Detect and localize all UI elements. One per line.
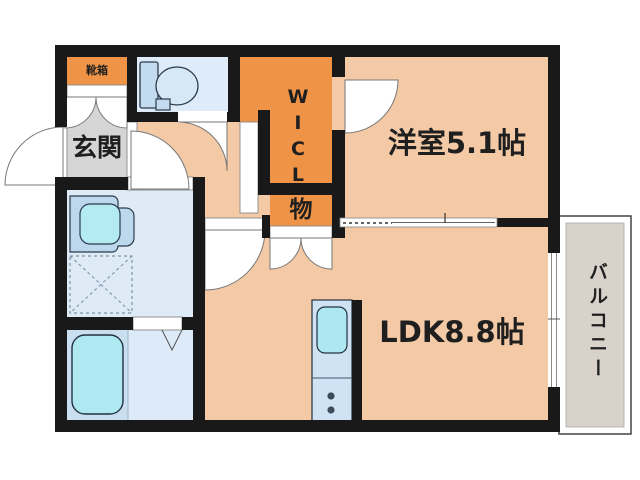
wall-bottom xyxy=(55,420,560,432)
bathtub-icon xyxy=(72,335,123,414)
room-label-shoe-cabinet: 靴箱 xyxy=(86,65,108,77)
kitchen-counter xyxy=(312,300,352,423)
room-label-storage: 物 xyxy=(290,198,313,222)
wall-washroom-north xyxy=(55,177,128,190)
shoe-cabinet-front xyxy=(67,85,127,97)
wall-washroom-east xyxy=(193,177,205,432)
wall-right-lower xyxy=(548,387,560,432)
entrance-door-arc xyxy=(5,127,63,185)
stove-burners-icon xyxy=(327,392,334,399)
room-label-wicl: WICL xyxy=(287,86,307,190)
wall-wicl-east-upper xyxy=(332,45,345,77)
wall-stub-storage xyxy=(262,215,270,238)
wall-bath-divider-right xyxy=(182,317,205,330)
wall-right-upper xyxy=(548,45,560,253)
wall-toilet-west xyxy=(127,45,137,122)
wall-left-lower xyxy=(55,185,67,432)
room-label-entrance: 玄関 xyxy=(72,135,122,161)
wall-bath-divider-left xyxy=(67,317,133,330)
wall-left-upper xyxy=(55,45,67,127)
wall-wicl-west-lower xyxy=(258,110,270,195)
wall-kitchen-stub xyxy=(352,300,362,423)
storage-door-opening xyxy=(270,226,332,238)
wicl-floor-upper xyxy=(240,57,332,122)
room-label-western-room: 洋室5.1帖 xyxy=(388,128,526,158)
balcony-window xyxy=(548,253,560,387)
door-panel xyxy=(240,122,258,213)
wall-wicl-west-upper xyxy=(228,45,240,122)
bathroom-door-opening xyxy=(133,317,182,330)
floorplan: 靴箱 玄関 WICL 物 洋室5.1帖 LDK8.8帖 バルコニー xyxy=(0,0,640,480)
room-label-balcony: バルコニー xyxy=(586,262,606,382)
bathroom-floor-right xyxy=(128,330,193,420)
kitchen-sink-icon xyxy=(317,307,347,353)
room-label-ldk: LDK8.8帖 xyxy=(379,317,524,347)
wall-toilet-south-left xyxy=(127,112,178,122)
hall-ldk-door-opening xyxy=(205,218,265,230)
toilet-door-opening xyxy=(178,111,227,123)
